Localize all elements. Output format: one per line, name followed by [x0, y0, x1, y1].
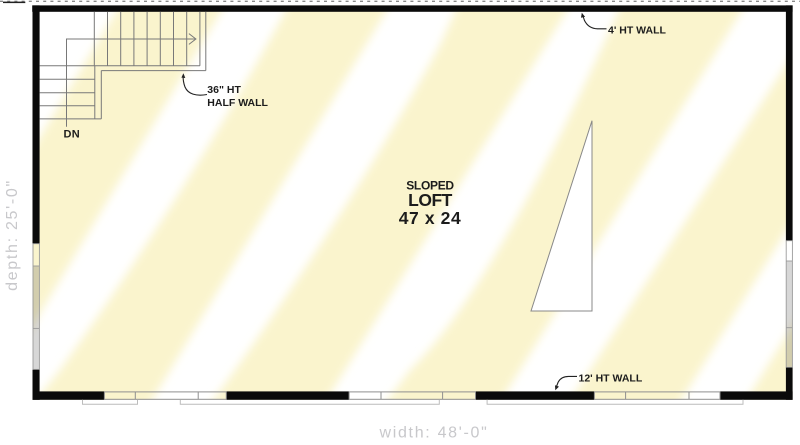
svg-text:width: 48'-0": width: 48'-0": [378, 424, 488, 441]
svg-text:depth: 25'-0": depth: 25'-0": [4, 179, 21, 291]
svg-text:LOFT: LOFT: [408, 190, 452, 210]
svg-text:HALF WALL: HALF WALL: [207, 97, 268, 109]
svg-text:36" HT: 36" HT: [207, 84, 241, 96]
svg-text:DN: DN: [64, 129, 81, 141]
svg-text:47 x 24: 47 x 24: [399, 208, 462, 228]
svg-text:12' HT WALL: 12' HT WALL: [579, 373, 643, 385]
svg-text:4' HT WALL: 4' HT WALL: [608, 25, 666, 37]
